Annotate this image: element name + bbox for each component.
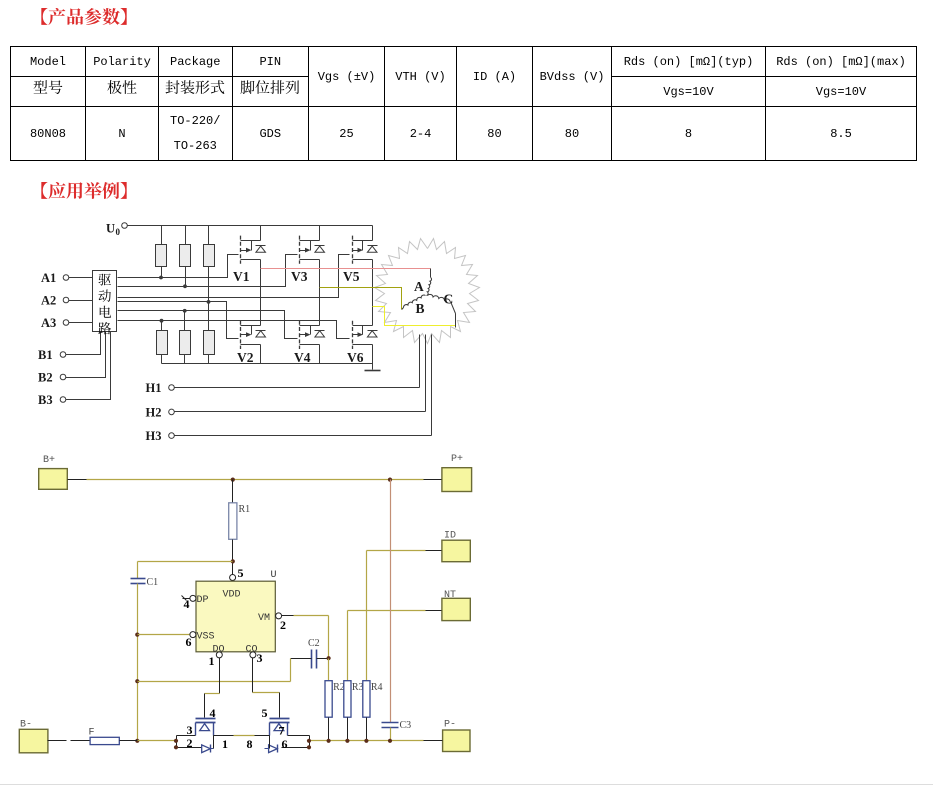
svg-text:3: 3	[257, 651, 263, 665]
svg-text:VSS: VSS	[197, 632, 215, 643]
svg-text:P-: P-	[444, 720, 456, 731]
svg-text:V6: V6	[347, 350, 364, 365]
svg-text:0: 0	[116, 227, 121, 237]
svg-text:P+: P+	[451, 454, 463, 465]
svg-text:DP: DP	[197, 595, 209, 606]
svg-text:C: C	[444, 292, 454, 307]
svg-text:B3: B3	[38, 393, 53, 407]
svg-text:H3: H3	[146, 429, 162, 443]
svg-text:R2: R2	[333, 682, 345, 693]
svg-text:R3: R3	[352, 682, 364, 693]
svg-text:2: 2	[280, 618, 286, 632]
svg-text:VDD: VDD	[223, 590, 241, 601]
svg-text:V3: V3	[291, 269, 308, 284]
svg-text:B1: B1	[38, 348, 53, 362]
svg-text:3: 3	[187, 723, 193, 737]
svg-text:6: 6	[282, 737, 288, 751]
svg-text:H1: H1	[146, 381, 162, 395]
svg-text:4: 4	[210, 706, 216, 720]
svg-text:B+: B+	[43, 455, 55, 466]
svg-text:U: U	[271, 570, 277, 581]
svg-text:R1: R1	[239, 504, 251, 515]
svg-text:B2: B2	[38, 371, 53, 385]
svg-text:A1: A1	[41, 271, 56, 285]
svg-text:2: 2	[187, 736, 193, 750]
svg-text:5: 5	[262, 706, 268, 720]
svg-text:1: 1	[209, 654, 215, 668]
svg-text:C1: C1	[147, 577, 159, 588]
svg-text:V2: V2	[237, 350, 254, 365]
svg-text:VM: VM	[258, 613, 270, 624]
svg-text:1: 1	[222, 737, 228, 751]
svg-text:C3: C3	[400, 720, 412, 731]
svg-text:8: 8	[247, 737, 253, 751]
svg-text:F: F	[89, 728, 95, 739]
svg-text:5: 5	[238, 566, 244, 580]
svg-text:H2: H2	[146, 405, 162, 419]
svg-text:7: 7	[279, 724, 285, 738]
svg-text:A2: A2	[41, 294, 56, 308]
svg-text:NT: NT	[444, 590, 456, 601]
svg-text:6: 6	[186, 635, 192, 649]
svg-text:V1: V1	[233, 269, 250, 284]
svg-text:A: A	[414, 279, 424, 294]
svg-text:U: U	[106, 222, 115, 236]
svg-text:ID: ID	[444, 531, 456, 542]
svg-text:A3: A3	[41, 316, 56, 330]
svg-text:B: B	[416, 301, 425, 316]
svg-text:C2: C2	[308, 638, 320, 649]
svg-text:V5: V5	[343, 269, 360, 284]
svg-text:R4: R4	[371, 682, 383, 693]
svg-text:B-: B-	[20, 720, 32, 731]
svg-text:V4: V4	[294, 350, 311, 365]
